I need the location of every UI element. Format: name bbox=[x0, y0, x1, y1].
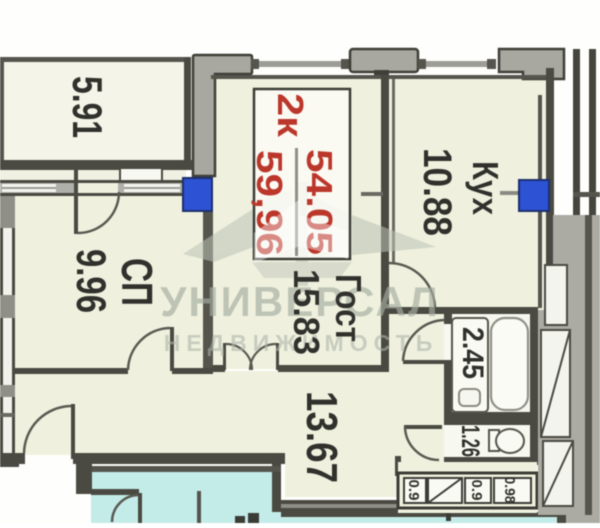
svg-text:0.9: 0.9 bbox=[468, 480, 485, 501]
svg-text:0.98: 0.98 bbox=[501, 477, 518, 504]
svg-text:0.9: 0.9 bbox=[405, 480, 422, 501]
svg-text:1.26: 1.26 bbox=[456, 425, 484, 457]
svg-text:2.45: 2.45 bbox=[456, 327, 489, 379]
svg-text:10.88: 10.88 bbox=[415, 148, 459, 236]
svg-text:СП: СП bbox=[112, 258, 161, 306]
svg-text:13.67: 13.67 bbox=[297, 391, 346, 483]
svg-text:9.96: 9.96 bbox=[68, 249, 115, 313]
svg-text:Кух: Кух bbox=[465, 161, 506, 215]
svg-text:5.91: 5.91 bbox=[64, 76, 111, 138]
svg-text:15.83: 15.83 bbox=[286, 269, 327, 355]
svg-text:2к: 2к bbox=[270, 93, 311, 138]
svg-text:Гост: Гост bbox=[328, 274, 369, 342]
